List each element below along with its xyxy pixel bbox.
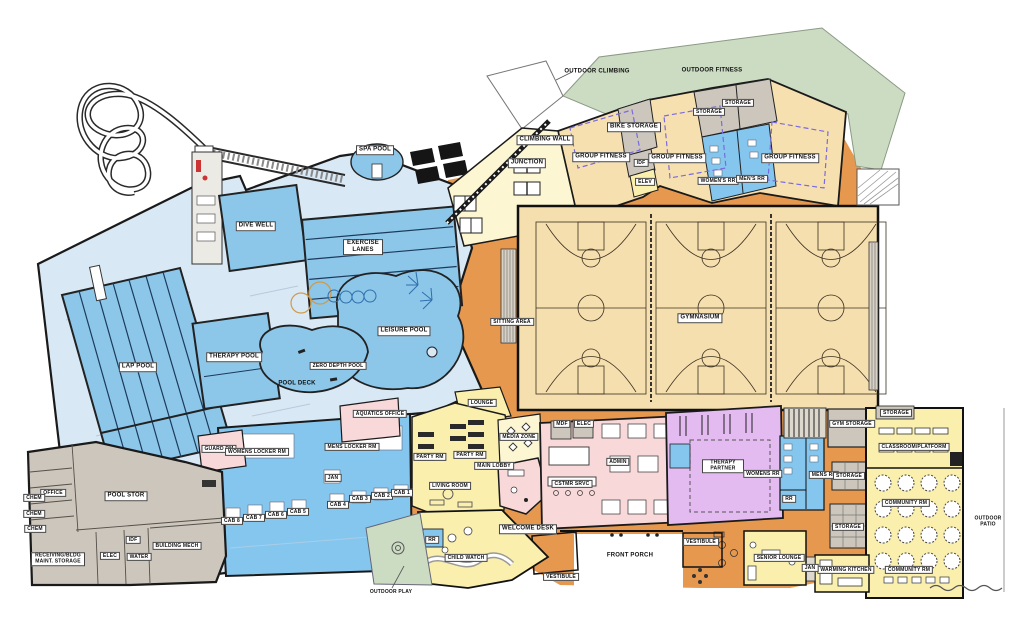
fitness-mens-rr-label: MEN'S RR [736, 175, 768, 183]
chem-3-label: CHEM [24, 525, 46, 533]
storage-right-2-label: STORAGE [832, 523, 864, 531]
admin-label: ADMIN [606, 458, 629, 466]
receiving-label: RECEIVING/BLDG MAINT. STORAGE [31, 552, 85, 566]
recreation-center-floor-plan: OUTDOOR CLIMBING OUTDOOR FITNESS SPA POO… [0, 0, 1013, 617]
pool-deck-label: POOL DECK [276, 380, 317, 388]
group-fitness-2-label: GROUP FITNESS [648, 153, 706, 163]
aquatics-office-label: AQUATICS OFFICE [353, 410, 407, 418]
gymnasium-label: GYMNASIUM [677, 313, 722, 323]
service-idf-label: IDF [126, 536, 141, 544]
cstmr-srvc-label: CSTMR SRVC [552, 480, 593, 488]
community-storage-label: STORAGE [880, 409, 912, 417]
lounge-label: LOUNGE [468, 399, 497, 407]
leisure-pool-island [427, 347, 437, 357]
spa-pool-label: SPA POOL [356, 145, 394, 155]
fitness-womens-rr-label: WOMEN'S RR [698, 177, 739, 185]
service-elec-label: ELEC [100, 552, 120, 560]
child-watch-label: CHILD WATCH [445, 554, 488, 562]
cab-4-label: CAB 4 [327, 501, 349, 509]
group-fitness-3-label: GROUP FITNESS [761, 153, 819, 163]
leisure-pool-label: LEISURE POOL [377, 326, 430, 336]
exercise-lanes-label: EXERCISE LANES [343, 239, 383, 255]
welcome-desk-label: WELCOME DESK [499, 524, 557, 534]
bike-storage-label: BIKE STORAGE [607, 122, 661, 132]
vestibule-east-label: VESTIBULE [683, 538, 719, 546]
cab-5-label: CAB 5 [287, 508, 309, 516]
party-rm-2-label: PARTY RM [453, 451, 486, 459]
senior-lounge-label: SENIOR LOUNGE [754, 554, 805, 562]
warming-kitchen-label: WARMING KITCHEN [817, 566, 874, 574]
party-rm-1-label: PARTY RM [413, 453, 446, 461]
cab-8-label: CAB 8 [221, 517, 243, 525]
group-fitness-1-label: GROUP FITNESS [572, 152, 630, 162]
media-zone-label: MEDIA ZONE [499, 433, 538, 441]
cab-1-label: CAB 1 [391, 489, 413, 497]
fitness-storage-2-label: STORAGE [722, 99, 754, 107]
child-watch-rr-label: RR [425, 536, 439, 544]
community-rm-2-label: COMMUNITY RM [885, 566, 933, 574]
elev-label: ELEV [635, 178, 655, 186]
chem-2-label: CHEM [23, 510, 45, 518]
aquatics-office [340, 398, 400, 442]
mdf-label: MDF [553, 420, 570, 428]
therapy-partner-label: THERAPY PARTNER [702, 459, 744, 473]
therapy-pool-label: THERAPY POOL [206, 352, 262, 362]
community-rm-1-label: COMMUNITY RM [882, 499, 930, 507]
climbing-wall-label: CLIMBING WALL [517, 135, 574, 145]
cab-2-label: CAB 2 [371, 492, 393, 500]
cab-3-label: CAB 3 [349, 495, 371, 503]
locker-jan-label: JAN [325, 474, 342, 482]
living-room-label: LIVING ROOM [429, 482, 471, 490]
shade-panels [410, 142, 468, 184]
storage-right-1-label: STORAGE [833, 472, 865, 480]
outdoor-climbing-area [487, 61, 563, 129]
outdoor-stair-structure [857, 169, 899, 205]
womens-locker-label: WOMENS LOCKER RM [225, 448, 289, 456]
dive-well-label: DIVE WELL [236, 221, 276, 231]
chem-1-label: CHEM [23, 494, 45, 502]
gymnasium [518, 206, 886, 410]
community-jan-label: JAN [802, 564, 819, 572]
gym-storage-label: GYM STORAGE [829, 420, 875, 428]
cab-6-label: CAB 6 [265, 511, 287, 519]
zero-depth-pool-label: ZERO DEPTH POOL [310, 362, 367, 370]
admin-block [540, 416, 683, 529]
admin-elec-label: ELEC [574, 420, 594, 428]
pool-stor-label: POOL STOR [105, 491, 148, 501]
outdoor-patio-label: OUTDOOR PATIO [968, 516, 1008, 528]
classroom-platform-label: CLASSROOM/PLATFORM [879, 443, 950, 451]
therapy-womens-rr-label: WOMENS RR [743, 470, 782, 478]
fitness-storage-1-label: STORAGE [693, 108, 725, 116]
building-mech-label: BUILDING MECH [153, 542, 202, 550]
outdoor-fitness-label: OUTDOOR FITNESS [680, 67, 745, 75]
mens-locker-label: MENS LOCKER RM [325, 443, 380, 451]
outdoor-climbing-label: OUTDOOR CLIMBING [562, 68, 631, 76]
gym-stair [784, 408, 826, 438]
cab-7-label: CAB 7 [243, 514, 265, 522]
front-porch-label: FRONT PORCH [605, 552, 655, 560]
water-label: WATER [127, 553, 152, 561]
main-lobby-label: MAIN LOBBY [474, 462, 514, 470]
lap-pool-label: LAP POOL [119, 362, 157, 372]
front-porch-paving [574, 534, 683, 604]
outdoor-play-label: OUTDOOR PLAY [368, 589, 414, 595]
sitting-area-label: SITTING AREA [490, 318, 534, 326]
fitness-idf-label: IDF [634, 159, 649, 167]
vestibule-west-label: VESTIBULE [543, 573, 579, 581]
pool-mech-equipment [192, 152, 222, 264]
junction-label: JUNCTION [508, 158, 546, 168]
therapy-rr-label: RR [782, 495, 796, 503]
